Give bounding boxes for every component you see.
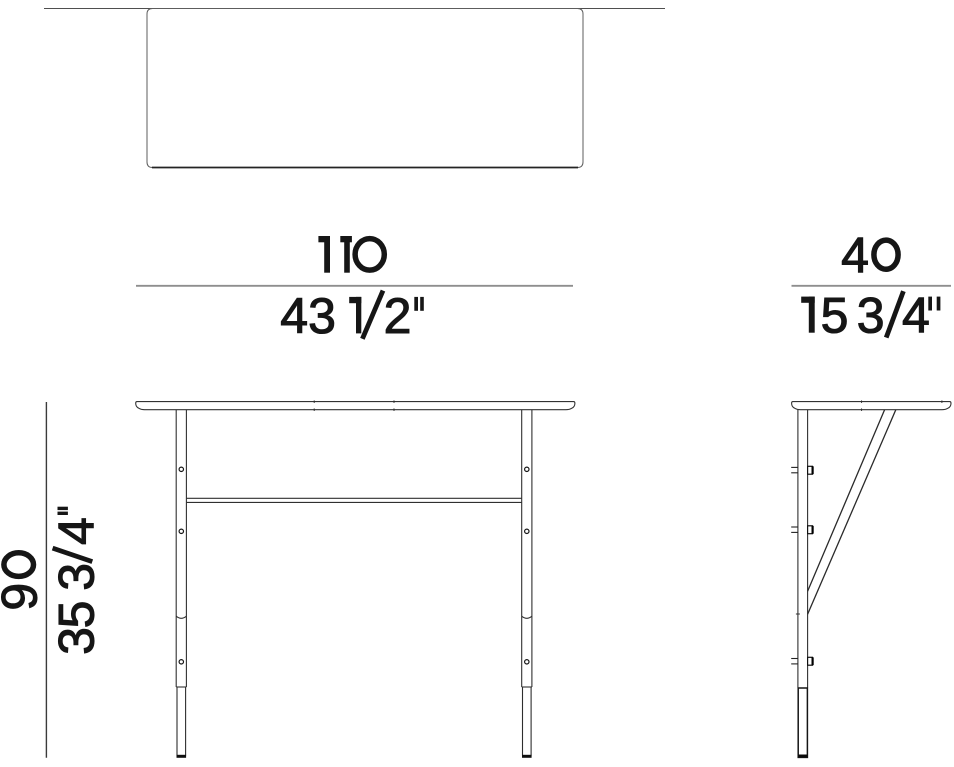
svg-text:4: 4 <box>49 517 105 545</box>
svg-text:3: 3 <box>49 627 105 655</box>
svg-text:5: 5 <box>49 600 105 628</box>
svg-text:5: 5 <box>821 288 849 344</box>
svg-text:3: 3 <box>857 288 885 344</box>
svg-text:43: 43 <box>280 288 336 344</box>
svg-text:4: 4 <box>841 228 869 284</box>
svg-text:3: 3 <box>49 563 105 591</box>
svg-text:2: 2 <box>384 288 412 344</box>
svg-text:4: 4 <box>902 288 930 344</box>
svg-text:9: 9 <box>0 583 48 611</box>
